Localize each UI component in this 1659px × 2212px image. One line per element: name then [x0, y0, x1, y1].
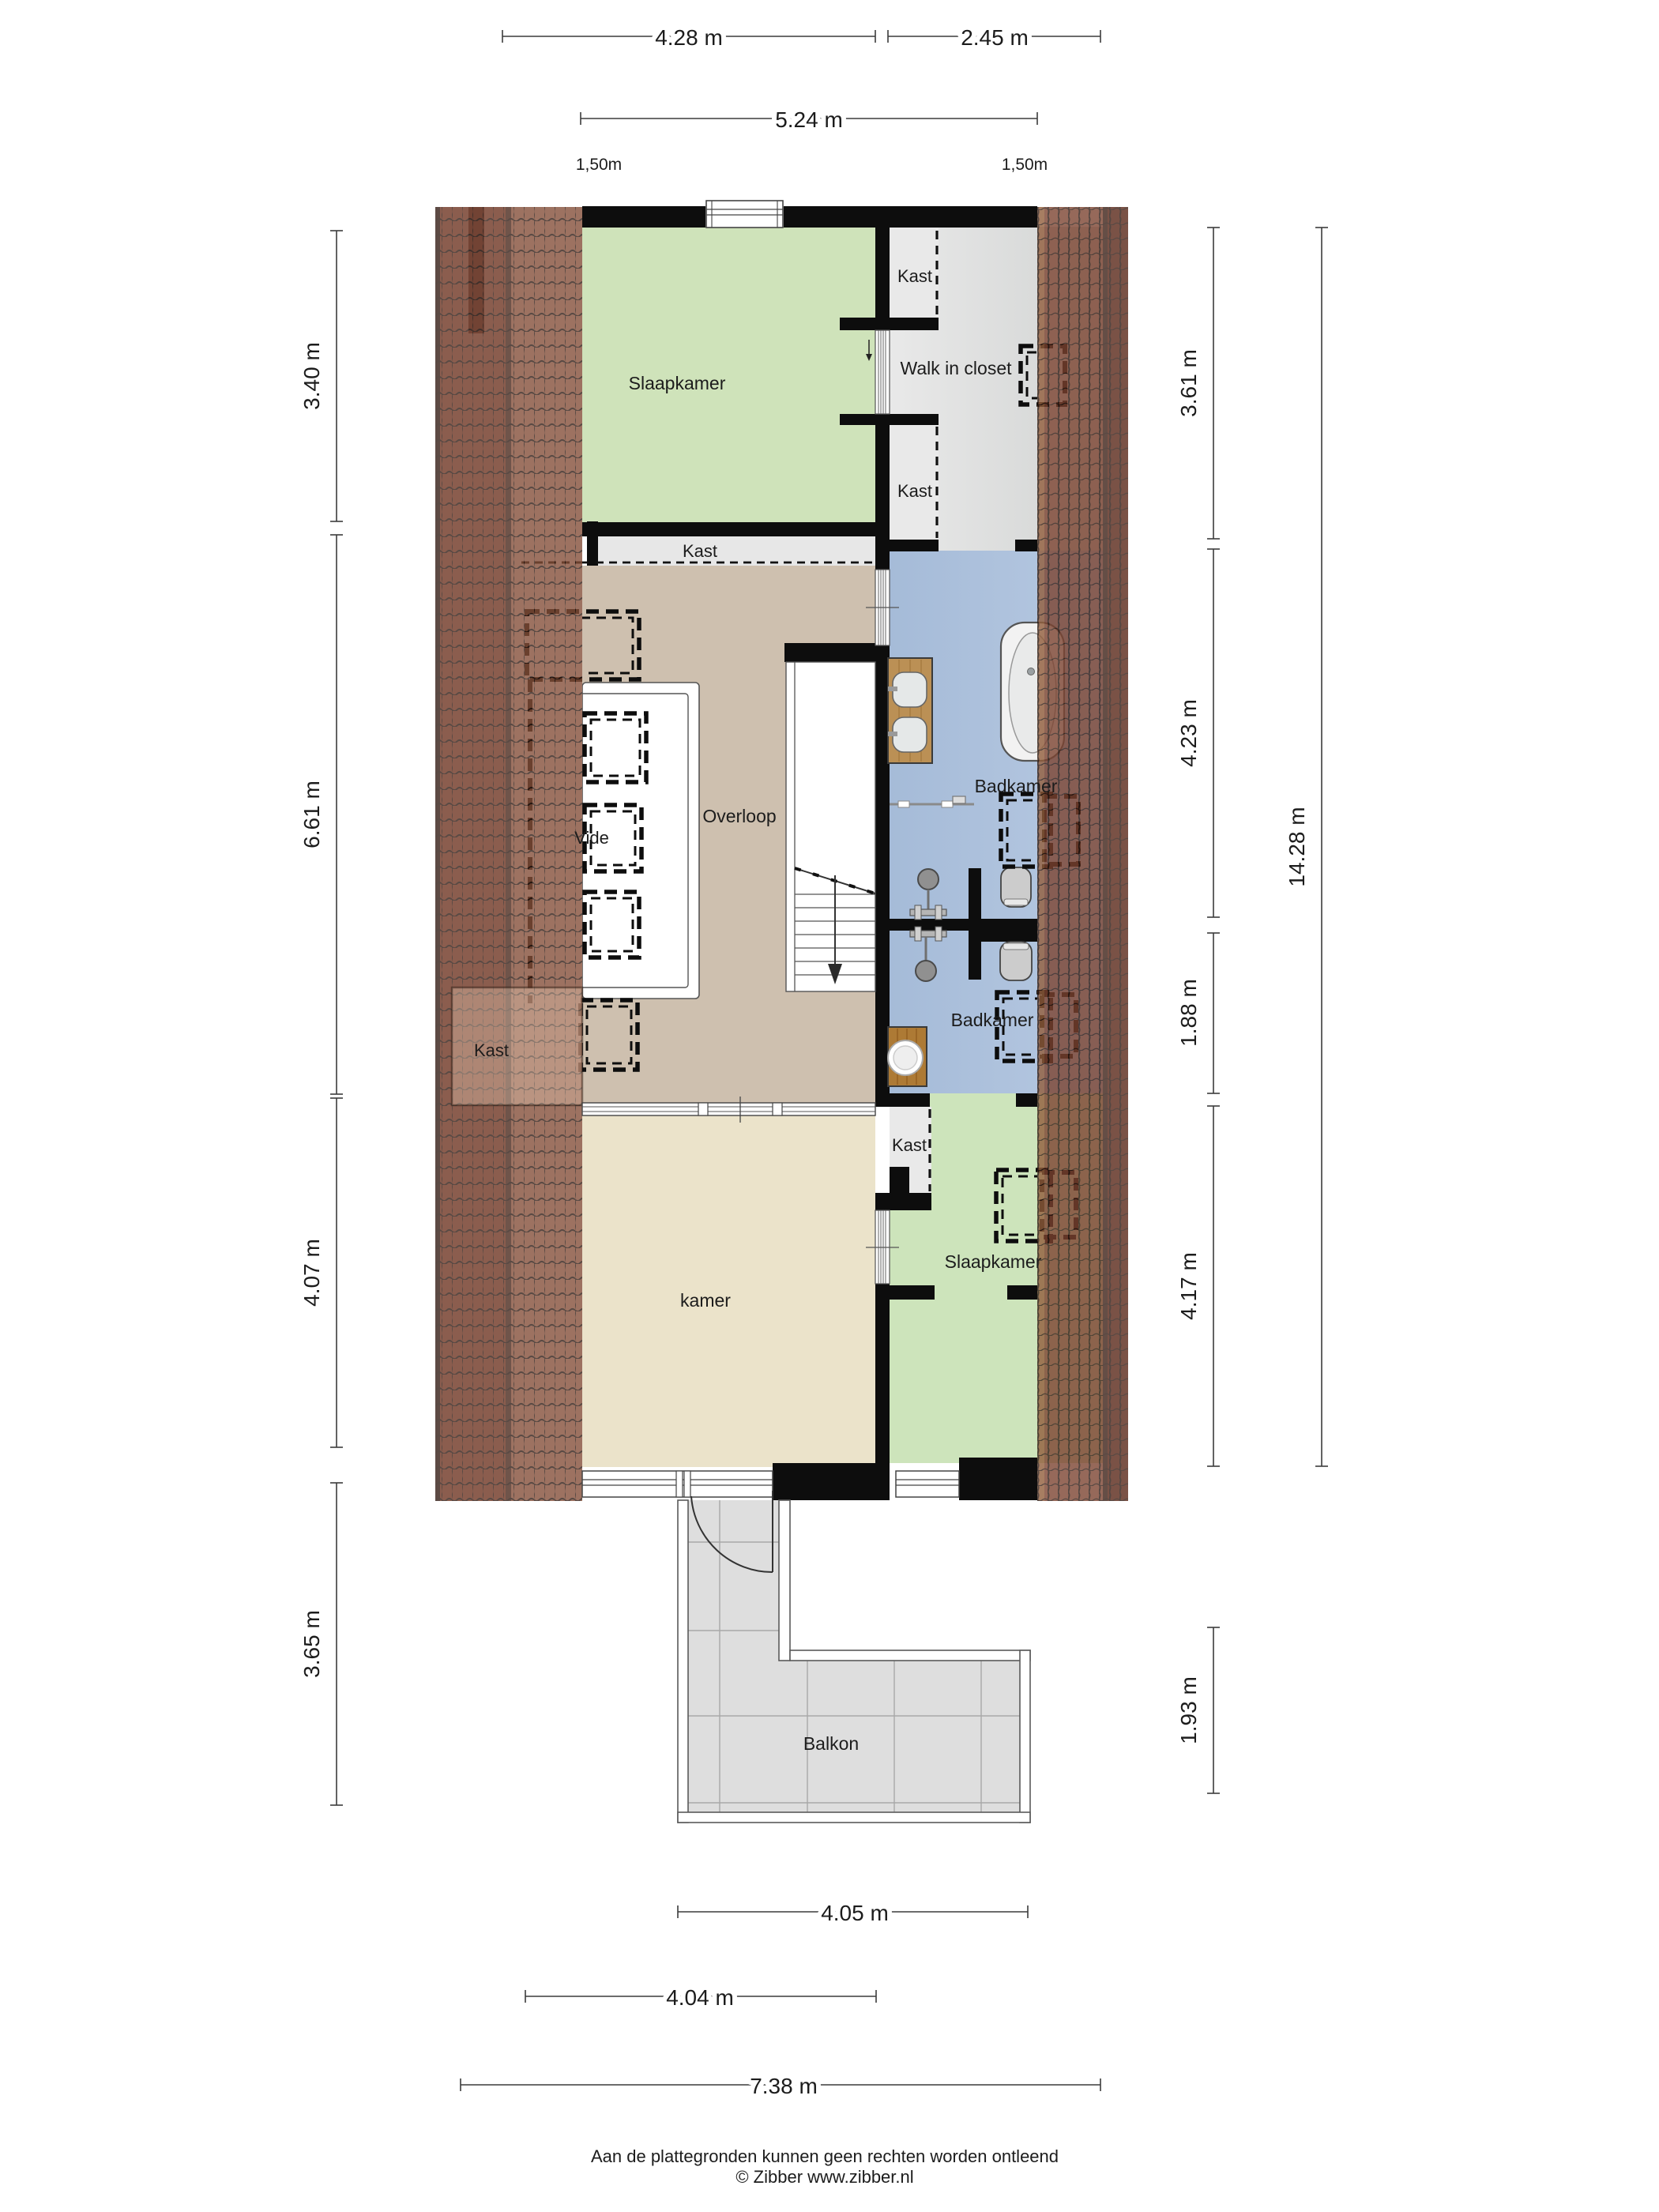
svg-text:Walk in closet: Walk in closet: [900, 358, 1012, 378]
svg-text:4.28 m: 4.28 m: [655, 25, 723, 50]
svg-text:5.24 m: 5.24 m: [775, 107, 843, 132]
svg-text:Badkamer: Badkamer: [951, 1010, 1034, 1030]
svg-text:Kast: Kast: [892, 1135, 927, 1155]
svg-text:1,50m: 1,50m: [576, 156, 622, 174]
svg-text:3.61 m: 3.61 m: [1176, 349, 1201, 417]
svg-text:3.40 m: 3.40 m: [299, 342, 324, 410]
svg-text:4.17 m: 4.17 m: [1176, 1252, 1201, 1320]
svg-text:Kast: Kast: [683, 541, 717, 561]
svg-text:4.04 m: 4.04 m: [666, 1985, 734, 2010]
svg-text:Kast: Kast: [897, 266, 932, 286]
svg-text:Slaapkamer: Slaapkamer: [945, 1251, 1042, 1272]
svg-text:4.05 m: 4.05 m: [821, 1901, 889, 1925]
svg-text:6.61 m: 6.61 m: [299, 781, 324, 848]
svg-text:7.38 m: 7.38 m: [750, 2074, 818, 2098]
svg-text:2.45 m: 2.45 m: [961, 25, 1029, 50]
svg-text:4.07 m: 4.07 m: [299, 1239, 324, 1307]
svg-text:Overloop: Overloop: [702, 806, 776, 826]
svg-text:14.28 m: 14.28 m: [1285, 807, 1309, 886]
svg-text:Badkamer: Badkamer: [975, 776, 1058, 796]
svg-text:3.65 m: 3.65 m: [299, 1610, 324, 1678]
svg-text:Vide: Vide: [574, 828, 609, 848]
svg-text:kamer: kamer: [680, 1290, 731, 1311]
svg-text:1.93 m: 1.93 m: [1176, 1676, 1201, 1744]
svg-text:1,50m: 1,50m: [1002, 156, 1048, 174]
svg-text:Kast: Kast: [474, 1040, 509, 1060]
svg-text:4.23 m: 4.23 m: [1176, 699, 1201, 767]
svg-text:Kast: Kast: [897, 481, 932, 501]
svg-text:1.88 m: 1.88 m: [1176, 979, 1201, 1047]
svg-text:Aan de plattegronden kunnen ge: Aan de plattegronden kunnen geen rechten…: [591, 2146, 1059, 2166]
svg-text:Slaapkamer: Slaapkamer: [629, 373, 726, 393]
svg-text:Balkon: Balkon: [803, 1733, 859, 1754]
svg-text:© Zibber www.zibber.nl: © Zibber www.zibber.nl: [735, 2167, 913, 2187]
